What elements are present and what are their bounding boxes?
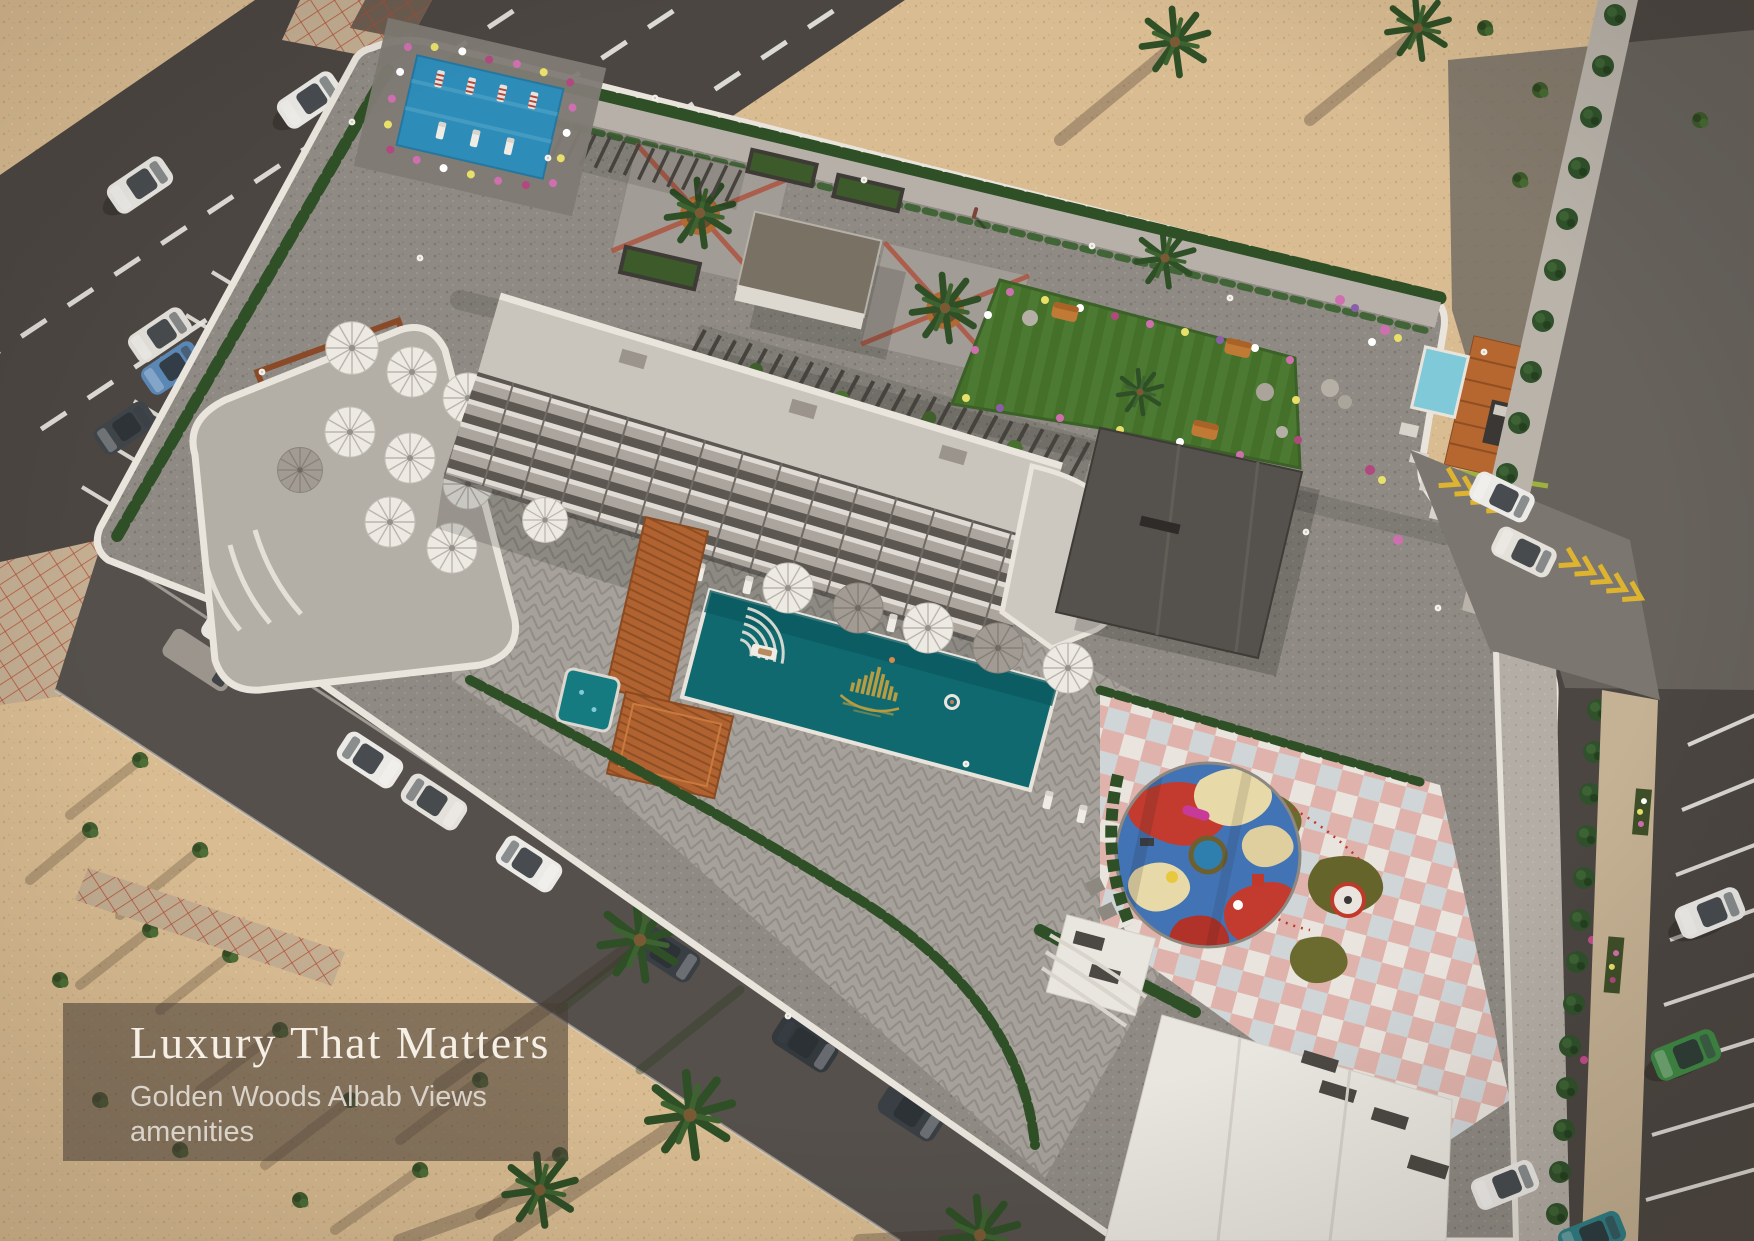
caption-subtitle-line1: Golden Woods Albab Views (130, 1080, 568, 1115)
caption-title: Luxury That Matters (130, 1017, 568, 1070)
caption-overlay: Luxury That Matters Golden Woods Albab V… (63, 1003, 568, 1161)
aerial-render-scene: Luxury That Matters Golden Woods Albab V… (0, 0, 1754, 1241)
caption-subtitle: Golden Woods Albab Views amenities (130, 1080, 568, 1151)
caption-subtitle-line2: amenities (130, 1115, 568, 1150)
